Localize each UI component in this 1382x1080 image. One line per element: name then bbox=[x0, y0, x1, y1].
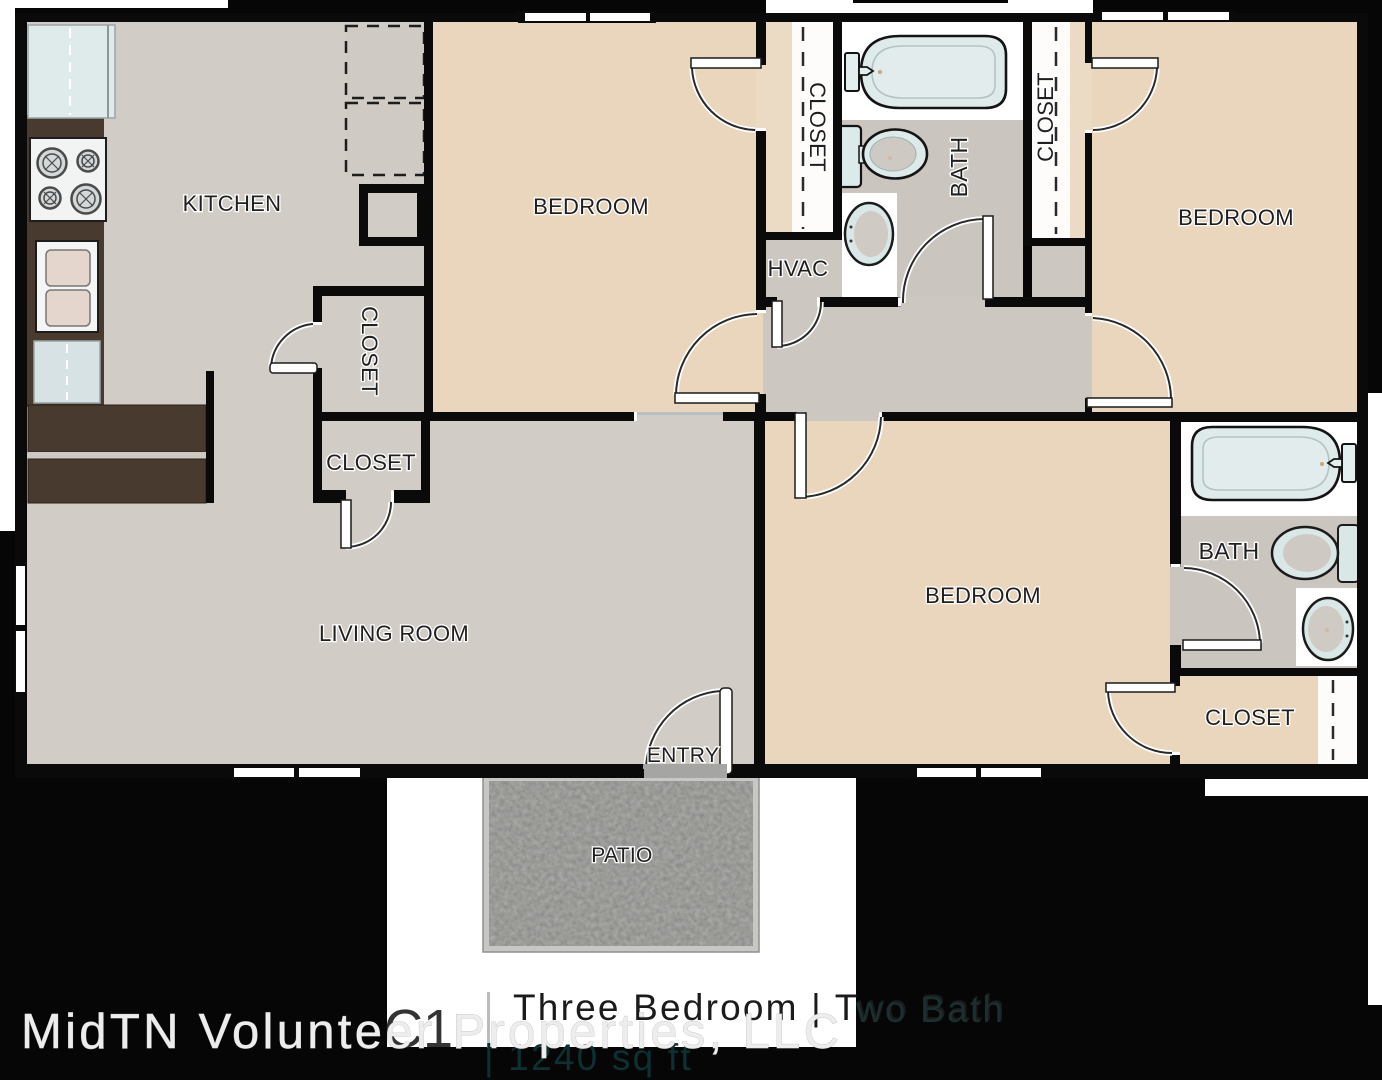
svg-text:BATH: BATH bbox=[1199, 538, 1260, 564]
svg-text:CLOSET: CLOSET bbox=[1205, 705, 1295, 730]
svg-text:ENTRY: ENTRY bbox=[647, 744, 719, 767]
svg-text:CLOSET: CLOSET bbox=[357, 306, 382, 396]
svg-text:wo Bath: wo Bath bbox=[855, 989, 1005, 1030]
svg-text:CLOSET: CLOSET bbox=[1033, 72, 1058, 162]
svg-text:HVAC: HVAC bbox=[768, 256, 829, 281]
svg-text:MidTN Volunteer Properties, LL: MidTN Volunteer Properties, LLC bbox=[21, 1005, 842, 1059]
svg-text:BATH: BATH bbox=[946, 137, 972, 198]
svg-text:BEDROOM: BEDROOM bbox=[1178, 205, 1294, 230]
svg-text:BEDROOM: BEDROOM bbox=[533, 194, 649, 219]
svg-text:KITCHEN: KITCHEN bbox=[183, 191, 282, 216]
svg-text:LIVING ROOM: LIVING ROOM bbox=[319, 621, 469, 646]
svg-text:CLOSET: CLOSET bbox=[805, 82, 830, 172]
svg-text:BEDROOM: BEDROOM bbox=[925, 583, 1041, 608]
svg-text:PATIO: PATIO bbox=[591, 844, 652, 867]
svg-text:CLOSET: CLOSET bbox=[326, 450, 416, 475]
